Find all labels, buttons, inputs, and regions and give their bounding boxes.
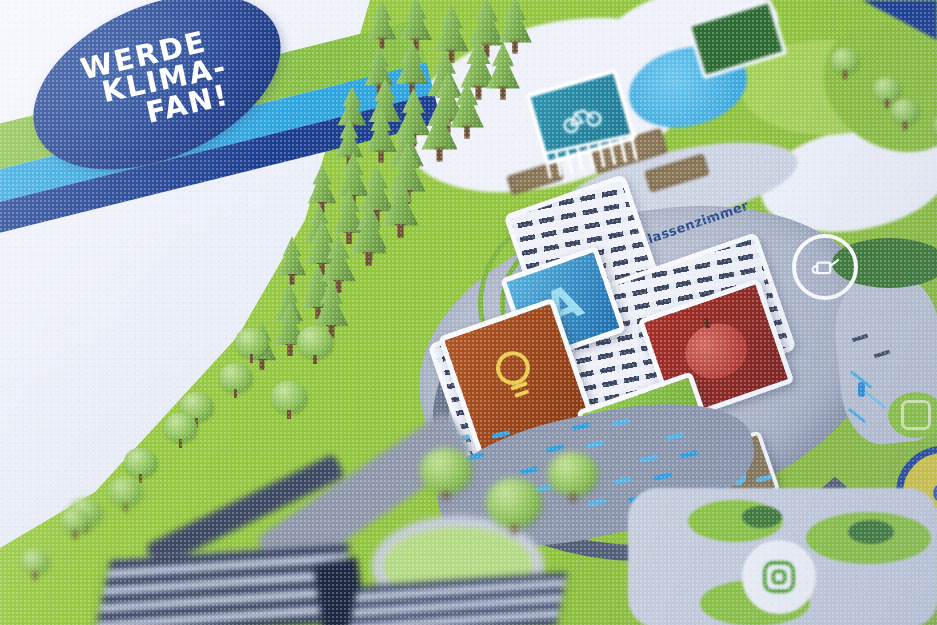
maze-station-badge: [742, 540, 816, 614]
target-center: [933, 483, 937, 503]
lightbulb-icon: [480, 337, 553, 417]
round-tree: [548, 452, 598, 496]
leaf-badge-icon: [901, 400, 931, 430]
leaf-badge: [888, 392, 937, 438]
round-tree: [420, 448, 472, 494]
printed-park-map-photo: Grünes Klassenzimmer A: [0, 0, 937, 625]
solar-panel-array: [94, 543, 350, 625]
bicycle-icon: [556, 97, 606, 136]
garden-station-badge: [792, 234, 858, 300]
maze-icon: [760, 558, 798, 596]
round-tree: [486, 478, 542, 528]
bush: [848, 520, 894, 544]
watering-can-icon: [807, 254, 843, 280]
badge-text: WERDE KLIMA- FAN!: [86, 28, 228, 136]
bush: [742, 506, 782, 528]
